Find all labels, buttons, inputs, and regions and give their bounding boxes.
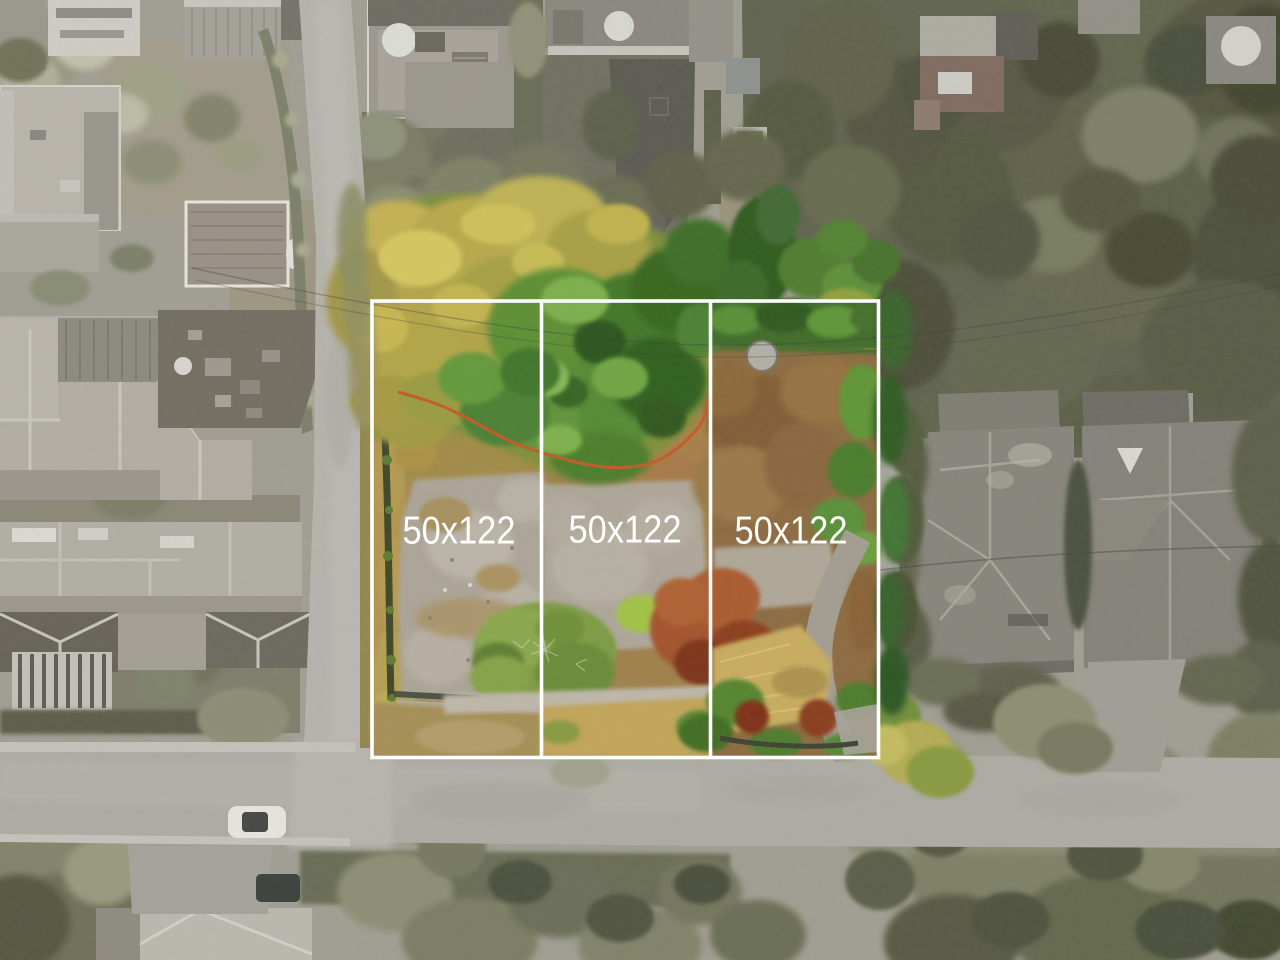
svg-text:50x122: 50x122 — [735, 510, 848, 553]
svg-text:50x122: 50x122 — [403, 510, 516, 553]
svg-text:50x122: 50x122 — [569, 509, 682, 552]
